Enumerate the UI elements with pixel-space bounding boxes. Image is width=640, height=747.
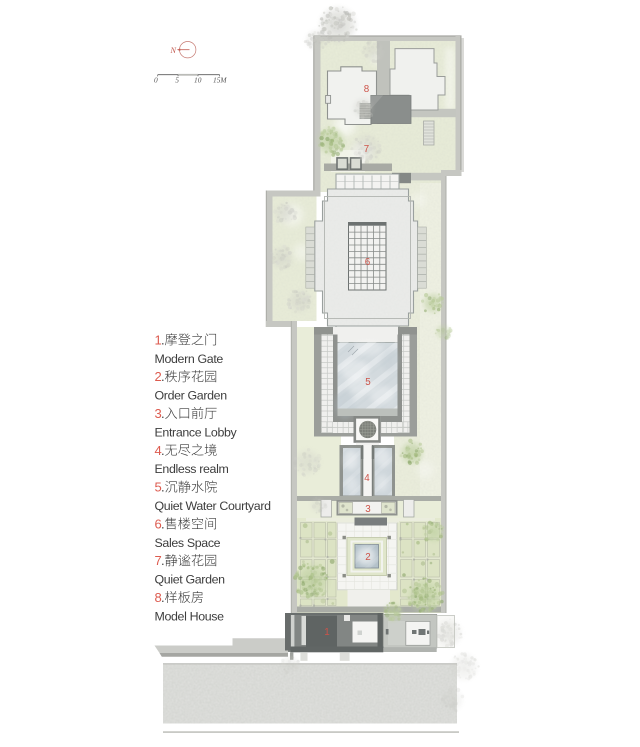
svg-text:Model House: Model House (155, 609, 225, 623)
svg-text:5: 5 (365, 377, 371, 388)
svg-text:3: 3 (365, 504, 371, 515)
svg-text:Endless realm: Endless realm (155, 462, 229, 476)
svg-text:15M: 15M (213, 76, 227, 85)
svg-text:Entrance Lobby: Entrance Lobby (155, 425, 238, 439)
svg-text:7: 7 (364, 144, 369, 155)
svg-text:N: N (170, 46, 177, 55)
svg-text:.: . (161, 516, 165, 531)
svg-text:.: . (161, 406, 165, 421)
svg-text:.: . (161, 553, 165, 568)
svg-text:.: . (161, 369, 165, 384)
svg-text:Sales Space: Sales Space (155, 536, 221, 550)
svg-text:5: 5 (175, 76, 179, 85)
svg-text:Order Garden: Order Garden (155, 389, 228, 403)
svg-text:Quiet Garden: Quiet Garden (155, 573, 226, 587)
svg-text:.: . (161, 332, 165, 347)
svg-text:.: . (161, 590, 165, 605)
svg-text:.: . (161, 443, 165, 458)
svg-text:0: 0 (154, 76, 158, 85)
svg-text:6: 6 (365, 257, 371, 268)
svg-text:10: 10 (194, 76, 202, 85)
svg-text:1: 1 (324, 627, 329, 638)
svg-text:8: 8 (364, 84, 370, 95)
svg-text:.: . (161, 480, 165, 495)
svg-text:4: 4 (364, 473, 370, 484)
svg-text:Modern Gate: Modern Gate (155, 352, 224, 366)
svg-text:2: 2 (365, 552, 370, 563)
svg-text:Quiet Water Courtyard: Quiet Water Courtyard (155, 499, 272, 513)
